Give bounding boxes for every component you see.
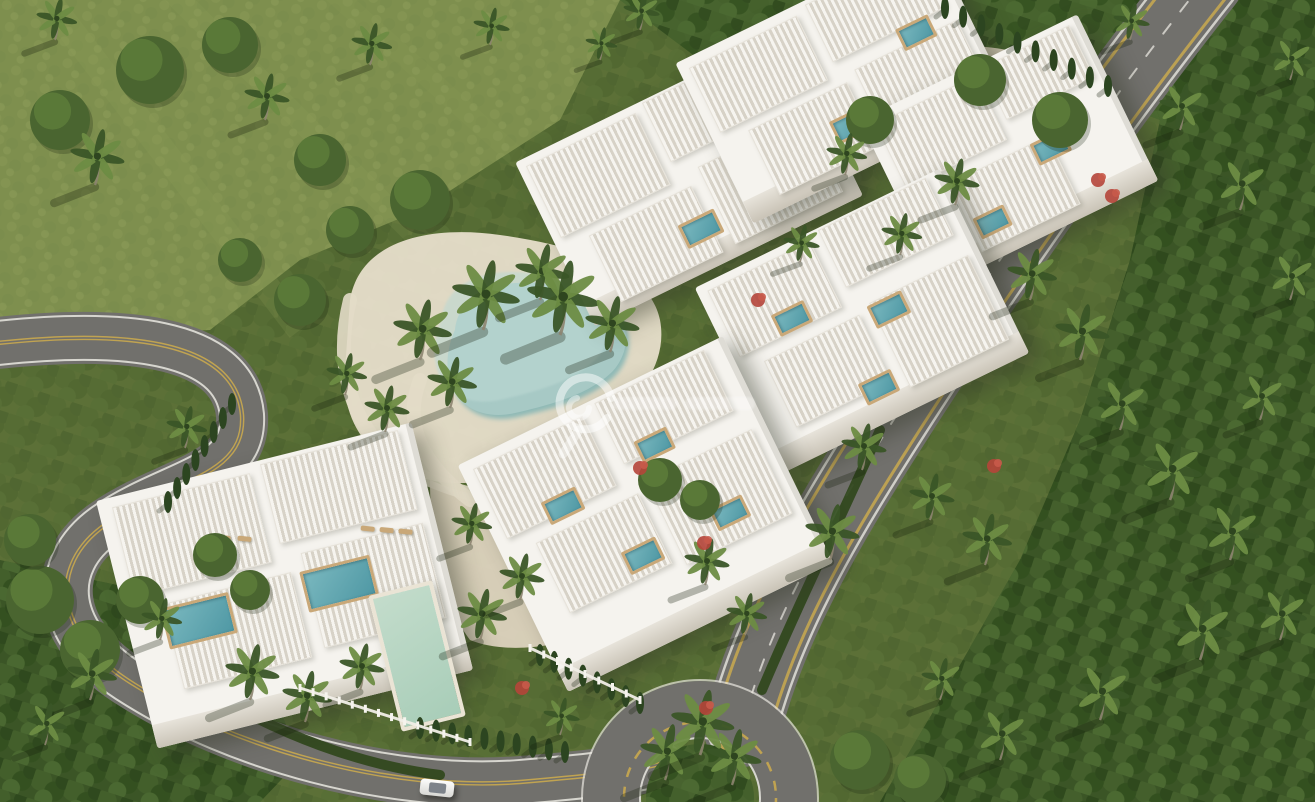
palm-crown	[704, 558, 710, 564]
fence-post	[312, 688, 315, 696]
palm-shadow	[1083, 432, 1120, 447]
palm-shadow	[1243, 642, 1280, 657]
aerial-render-scene	[0, 0, 1315, 802]
vegetation-overlay-layer	[0, 0, 1315, 802]
round-tree-highlight	[119, 578, 149, 608]
palm-shadow	[1189, 562, 1230, 578]
round-tree-highlight	[277, 276, 309, 308]
fence-post	[556, 657, 559, 665]
palm-shadow	[909, 702, 940, 714]
palm-crown	[559, 713, 564, 718]
cypress-tree	[448, 722, 456, 744]
palm-shadow	[413, 410, 450, 425]
palm-shadow	[1059, 722, 1100, 738]
palm-shadow	[268, 724, 305, 739]
palm-crown	[984, 535, 991, 542]
palm-crown	[449, 378, 456, 385]
cypress-tree	[201, 435, 209, 457]
fence-post	[442, 730, 445, 738]
bougainvillea-highlight	[704, 536, 712, 544]
round-tree-highlight	[394, 172, 431, 209]
fence-post	[338, 696, 341, 704]
palm-crown	[599, 41, 603, 45]
palm-crown	[264, 93, 270, 99]
palm-crown	[1179, 103, 1185, 109]
palm-shadow	[314, 397, 345, 409]
cypress-tree	[941, 0, 949, 19]
palm-shadow	[129, 642, 160, 654]
fence-post	[542, 651, 545, 659]
palm-crown	[744, 611, 749, 616]
round-tree-highlight	[329, 208, 359, 238]
fence-post	[299, 684, 302, 692]
palm-shadow	[671, 587, 705, 600]
cypress-tree	[210, 421, 218, 443]
palm-shadow	[439, 547, 470, 559]
palm-crown	[1289, 273, 1295, 279]
palm-crown	[954, 178, 960, 184]
palm-shadow	[1039, 362, 1080, 378]
palm-crown	[861, 443, 867, 449]
cypress-tree	[1050, 49, 1058, 71]
round-tree-highlight	[206, 19, 241, 54]
palm-shadow	[154, 450, 185, 462]
palm-crown	[249, 668, 256, 675]
palm-crown	[999, 730, 1006, 737]
cypress-tree	[497, 730, 505, 752]
palm-shadow	[869, 257, 900, 269]
palm-shadow	[714, 637, 745, 649]
fence-post	[429, 726, 432, 734]
fence-post	[597, 677, 600, 685]
cypress-tree	[164, 491, 172, 513]
palm-shadow	[921, 207, 955, 220]
cypress-tree	[959, 6, 967, 28]
round-tree-highlight	[849, 98, 879, 128]
palm-crown	[359, 663, 365, 669]
palm-crown	[731, 753, 738, 760]
round-tree-highlight	[297, 136, 329, 168]
fence-post	[455, 734, 458, 742]
fence-post	[325, 692, 328, 700]
bougainvillea-highlight	[640, 461, 648, 469]
round-tree-highlight	[221, 240, 248, 267]
palm-crown	[1259, 393, 1265, 399]
cypress-tree	[1086, 66, 1094, 88]
palm-shadow	[1256, 302, 1290, 315]
palm-crown	[469, 521, 474, 526]
fence-post	[639, 696, 642, 704]
palm-shadow	[506, 337, 560, 359]
palm-crown	[344, 371, 349, 376]
round-tree-highlight	[34, 92, 71, 129]
fence-post	[403, 717, 406, 725]
palm-shadow	[1126, 502, 1170, 520]
palm-crown	[1239, 180, 1246, 187]
palm-shadow	[54, 187, 95, 203]
palm-crown	[1229, 528, 1236, 535]
palm-shadow	[1103, 42, 1130, 52]
cypress-tree	[1032, 40, 1040, 62]
cypress-tree	[1068, 58, 1076, 80]
palm-shadow	[691, 787, 732, 802]
palm-shadow	[828, 472, 862, 485]
cypress-tree	[228, 393, 236, 415]
cypress-tree	[480, 728, 488, 750]
palm-crown	[419, 325, 427, 333]
palm-shadow	[963, 762, 1000, 777]
palm-crown	[304, 692, 311, 699]
bougainvillea-highlight	[994, 459, 1002, 467]
palm-crown	[639, 8, 644, 13]
fence-post	[469, 738, 472, 746]
palm-crown	[939, 676, 944, 681]
palm-shadow	[576, 62, 600, 71]
fence-post	[570, 664, 573, 672]
palm-crown	[489, 23, 494, 28]
palm-crown	[44, 721, 49, 726]
palm-crown	[829, 528, 836, 535]
fence-post	[584, 670, 587, 678]
palm-shadow	[463, 47, 490, 57]
palm-shadow	[773, 264, 800, 274]
palm-crown	[799, 240, 804, 245]
palm-shadow	[1226, 422, 1260, 435]
cypress-tree	[995, 23, 1003, 45]
cypress-tree	[182, 463, 190, 485]
palm-crown	[54, 16, 59, 21]
round-tree-highlight	[897, 756, 929, 788]
palm-crown	[609, 320, 616, 327]
round-tree-highlight	[1036, 94, 1071, 129]
palm-crown	[1289, 56, 1294, 61]
cypress-tree	[561, 741, 569, 763]
cypress-tree	[1104, 75, 1112, 97]
palm-crown	[369, 41, 374, 46]
palm-shadow	[789, 562, 830, 578]
bougainvillea-highlight	[758, 293, 766, 301]
palm-crown	[664, 748, 671, 755]
round-tree-highlight	[957, 56, 989, 88]
fence-post	[416, 721, 419, 729]
cypress-tree	[191, 449, 199, 471]
round-tree-highlight	[834, 732, 871, 769]
bougainvillea-highlight	[522, 681, 530, 689]
palm-crown	[89, 670, 96, 677]
palm-shadow	[14, 747, 45, 759]
bougainvillea-highlight	[1112, 189, 1120, 197]
bougainvillea-highlight	[1098, 173, 1106, 181]
round-tree-highlight	[683, 482, 708, 507]
palm-crown	[1279, 610, 1286, 617]
palm-shadow	[1203, 212, 1240, 227]
palm-crown	[94, 153, 101, 160]
cypress-tree	[977, 14, 985, 36]
palm-crown	[482, 290, 491, 299]
round-tree-highlight	[196, 535, 223, 562]
palm-shadow	[624, 782, 665, 798]
palm-shadow	[814, 177, 845, 189]
palm-crown	[929, 493, 935, 499]
cypress-tree	[219, 407, 227, 429]
palm-shadow	[613, 32, 640, 42]
round-tree-highlight	[7, 516, 39, 548]
fence-post	[529, 644, 532, 652]
palm-shadow	[993, 302, 1030, 317]
bougainvillea-highlight	[706, 701, 714, 709]
cypress-tree	[1013, 32, 1021, 54]
fence-post	[377, 709, 380, 717]
fence-post	[611, 683, 614, 691]
palm-crown	[184, 424, 189, 429]
palm-crown	[1079, 328, 1086, 335]
palm-crown	[1119, 400, 1126, 407]
palm-crown	[844, 151, 849, 156]
palm-shadow	[443, 642, 480, 657]
palm-crown	[1199, 625, 1207, 633]
palm-shadow	[209, 702, 250, 718]
palm-shadow	[376, 362, 420, 380]
palm-shadow	[351, 434, 385, 447]
round-tree-highlight	[10, 569, 52, 611]
palm-crown	[899, 231, 904, 236]
fence-post	[364, 705, 367, 713]
palm-crown	[519, 573, 525, 579]
round-tree-highlight	[120, 39, 162, 81]
fence-post	[390, 713, 393, 721]
palm-crown	[1029, 270, 1036, 277]
palm-crown	[699, 717, 707, 725]
palm-shadow	[948, 567, 985, 582]
palm-crown	[1099, 688, 1106, 695]
fence-post	[625, 690, 628, 698]
palm-shadow	[1259, 82, 1290, 94]
round-tree-highlight	[233, 572, 258, 597]
palm-shadow	[1146, 132, 1180, 145]
palm-crown	[558, 292, 568, 302]
palm-crown	[384, 405, 390, 411]
palm-shadow	[896, 522, 930, 535]
palm-shadow	[231, 122, 265, 135]
fence-post	[351, 701, 354, 709]
cypress-tree	[173, 477, 181, 499]
palm-crown	[1169, 465, 1177, 473]
palm-shadow	[1156, 662, 1200, 680]
cypress-tree	[513, 733, 521, 755]
palm-shadow	[339, 67, 370, 79]
palm-shadow	[24, 42, 55, 54]
palm-crown	[1129, 18, 1134, 23]
palm-shadow	[569, 354, 610, 370]
palm-crown	[159, 616, 164, 621]
